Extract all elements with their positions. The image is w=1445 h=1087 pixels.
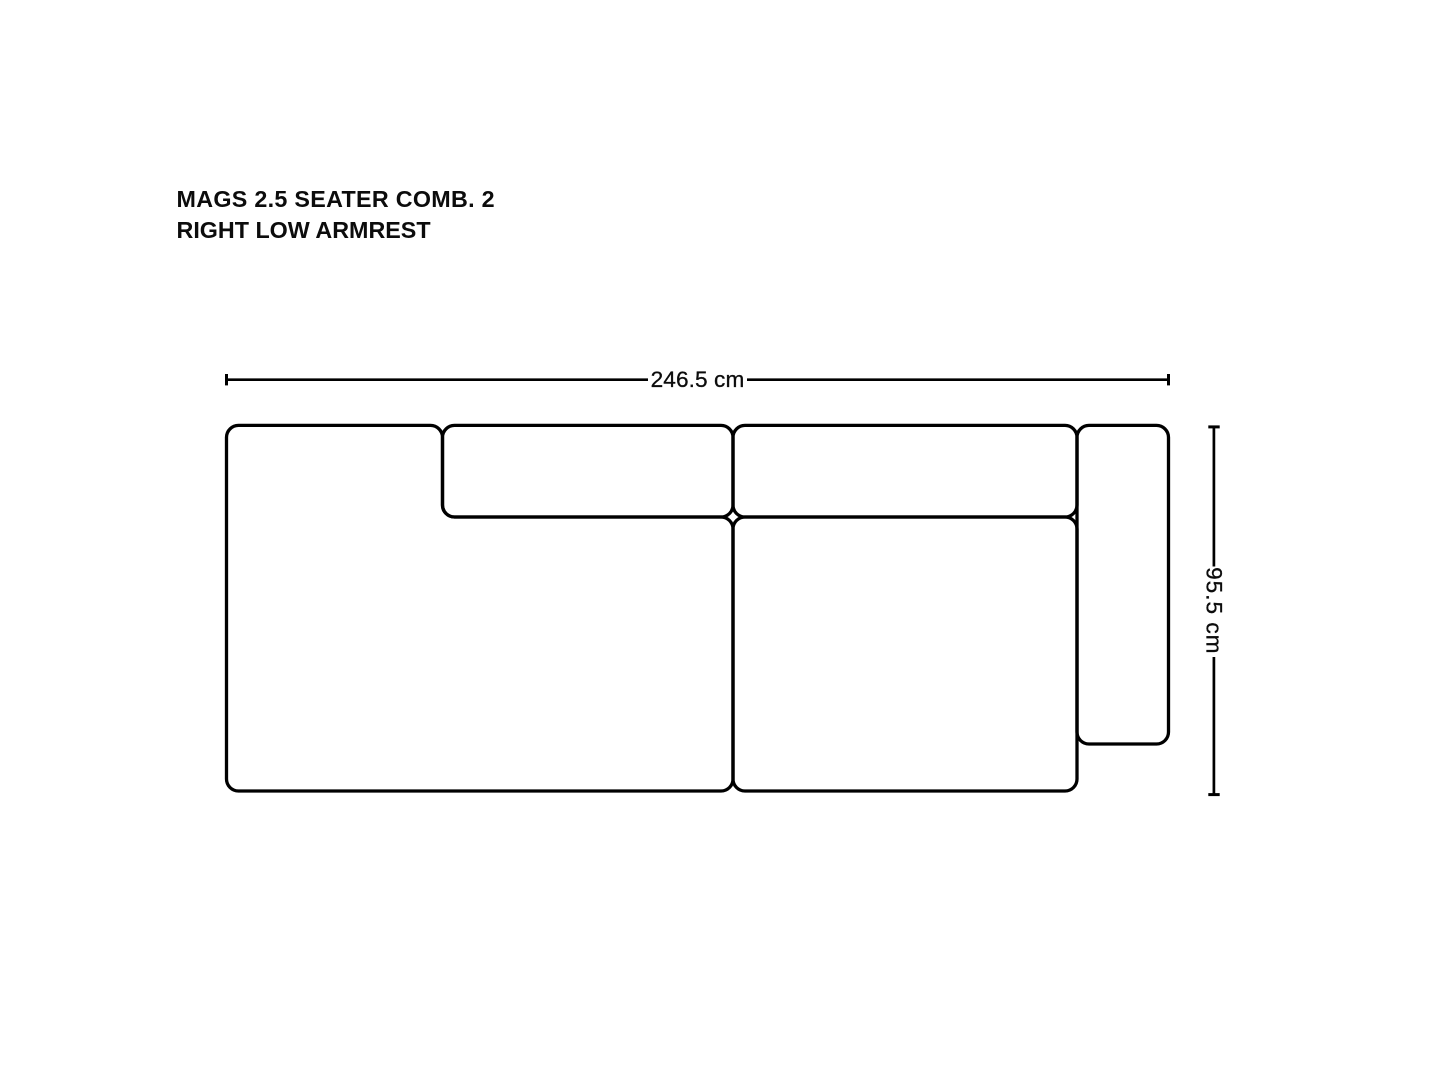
svg-text:246.5 cm: 246.5 cm: [651, 367, 745, 392]
svg-text:95.5 cm: 95.5 cm: [1202, 567, 1227, 654]
